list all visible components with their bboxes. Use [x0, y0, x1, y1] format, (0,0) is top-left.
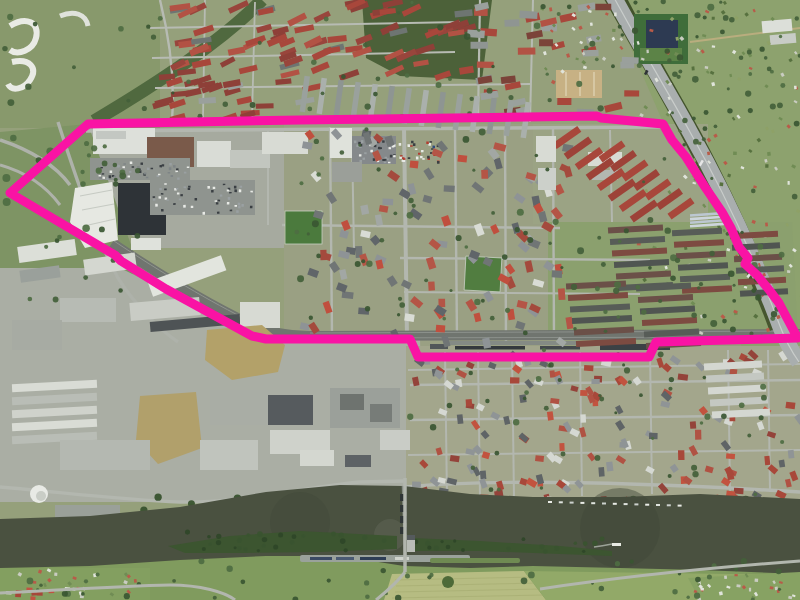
retail-box-1-units	[96, 131, 126, 139]
field-bush	[442, 576, 454, 588]
retail-box-2	[197, 141, 231, 167]
industrial-white-10	[300, 450, 334, 466]
moving-boat	[612, 543, 621, 546]
industrial-hall-4	[12, 320, 62, 350]
lock-barge-1	[310, 557, 332, 560]
lock-barge-4	[395, 557, 409, 560]
lock-barge-2	[336, 557, 354, 560]
industrial-yard-dark-1	[340, 394, 364, 410]
retail-box-5	[262, 132, 308, 154]
east-white-block-1	[536, 136, 556, 162]
industrial-hall-3	[240, 302, 280, 328]
industrial-hall-9	[60, 440, 150, 470]
sports-court-navy	[646, 20, 678, 48]
lock-island-green	[430, 558, 520, 563]
industrial-hall-8	[200, 440, 258, 470]
water-shade-2	[580, 488, 660, 568]
station-platform	[446, 341, 596, 345]
industrial-dark-11	[345, 455, 371, 467]
train-2	[540, 346, 580, 350]
sports-pitch-east	[464, 256, 502, 292]
road-center-v4	[505, 128, 506, 345]
lock-barge-3	[360, 557, 386, 560]
industrial-yard-dark-2	[370, 404, 392, 422]
industrial-hall-12	[380, 430, 410, 450]
industrial-hall-1	[60, 298, 116, 322]
aerial-orthophoto-image	[0, 0, 800, 600]
aerial-map-viewport[interactable]	[0, 0, 800, 600]
lock-control-roof	[407, 535, 415, 540]
industrial-hall-5	[210, 390, 270, 425]
storage-tank-shade	[36, 491, 46, 501]
retail-box-7	[332, 162, 362, 182]
industrial-hall-6	[268, 395, 313, 425]
retail-box-3	[131, 238, 161, 250]
